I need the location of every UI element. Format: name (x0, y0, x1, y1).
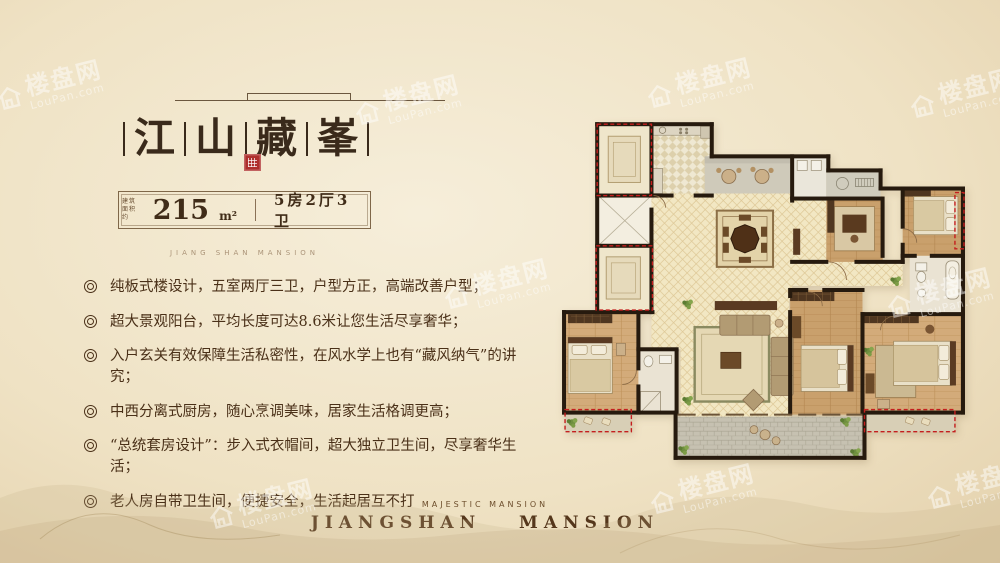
subtitle-english: JIANG SHAN MANSION (118, 249, 371, 257)
title-char: 峯 (308, 118, 367, 159)
bullet-icon (84, 280, 97, 293)
floor-plan (556, 110, 968, 472)
area-divider (255, 199, 256, 221)
house-icon (644, 81, 675, 111)
red-seal-stamp (244, 154, 261, 171)
title-char: 藏 (247, 118, 306, 159)
house-icon (0, 83, 25, 113)
page-title: 江 山 藏 峯 (108, 118, 384, 159)
feature-item: 入户玄关有效保障生活私密性，在风水学上也有“藏风纳气”的讲究； (84, 346, 539, 388)
title-char: 江 (125, 118, 184, 159)
feature-item: “总统套房设计”：步入式衣帽间，超大独立卫生间，尽享奢华生活； (84, 436, 539, 478)
bullet-icon (84, 439, 97, 452)
title-char: 山 (186, 118, 245, 159)
room-layout: 5房2厅3卫 (274, 189, 367, 231)
feature-item: 中西分离式厨房，随心烹调美味，居家生活格调更高； (84, 402, 539, 423)
area-unit: m² (219, 209, 237, 225)
footer-brand: MAJESTIC MANSION JIANGSHAN MANSION (0, 500, 970, 533)
footer-tagline: MAJESTIC MANSION (0, 500, 970, 509)
title-separator (367, 122, 369, 156)
bullet-icon (84, 405, 97, 418)
feature-item: 纯板式楼设计，五室两厅三卫，户型方正，高端改善户型； (84, 277, 539, 298)
feature-list: 纯板式楼设计，五室两厅三卫，户型方正，高端改善户型； 超大景观阳台，平均长度可达… (84, 277, 539, 526)
footer-brand-name: JIANGSHAN MANSION (0, 513, 970, 533)
bullet-icon (84, 315, 97, 328)
area-value: 215 (153, 197, 209, 224)
title-ornament-line (175, 92, 445, 101)
feature-item: 超大景观阳台，平均长度可达8.6米让您生活尽享奢华； (84, 312, 539, 333)
site-watermark: 楼盘网LouPan.com (0, 57, 107, 118)
area-label: 建筑 面积约 (122, 198, 143, 221)
bullet-icon (84, 349, 97, 362)
poster-page: { "watermark": { "brand": "楼盘网", "domain… (0, 0, 1000, 563)
site-watermark: 楼盘网LouPan.com (643, 55, 757, 116)
area-info-box: 建筑 面积约 215 m² 5房2厅3卫 (118, 191, 371, 229)
